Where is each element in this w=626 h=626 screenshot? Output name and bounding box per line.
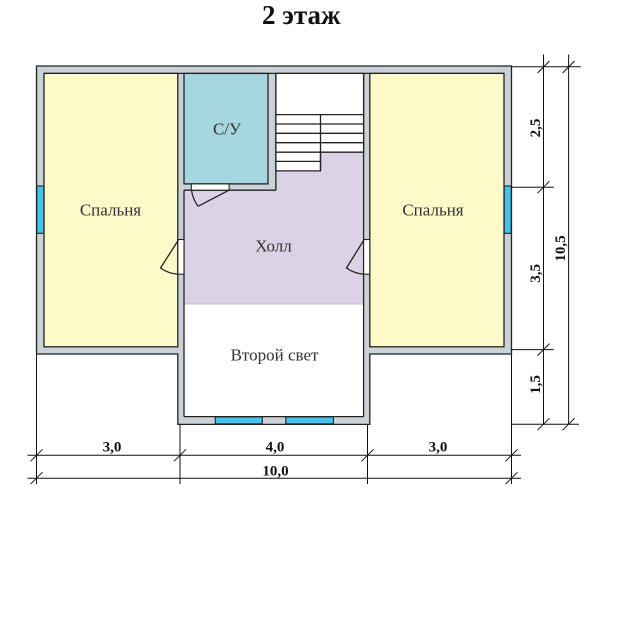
svg-text:2 этаж: 2 этаж bbox=[262, 0, 341, 30]
svg-text:Второй свет: Второй свет bbox=[231, 346, 319, 365]
svg-text:10,0: 10,0 bbox=[262, 464, 288, 480]
svg-text:3,5: 3,5 bbox=[528, 264, 544, 283]
svg-text:Спальня: Спальня bbox=[80, 201, 141, 220]
svg-text:С/У: С/У bbox=[213, 119, 242, 138]
svg-text:3,0: 3,0 bbox=[103, 440, 122, 456]
svg-text:3,0: 3,0 bbox=[429, 440, 448, 456]
svg-text:1,5: 1,5 bbox=[528, 375, 544, 394]
svg-text:2,5: 2,5 bbox=[528, 119, 544, 138]
svg-text:Холл: Холл bbox=[255, 237, 292, 256]
svg-text:4,0: 4,0 bbox=[266, 440, 285, 456]
svg-text:Спальня: Спальня bbox=[402, 201, 463, 220]
svg-text:10,5: 10,5 bbox=[553, 235, 569, 261]
